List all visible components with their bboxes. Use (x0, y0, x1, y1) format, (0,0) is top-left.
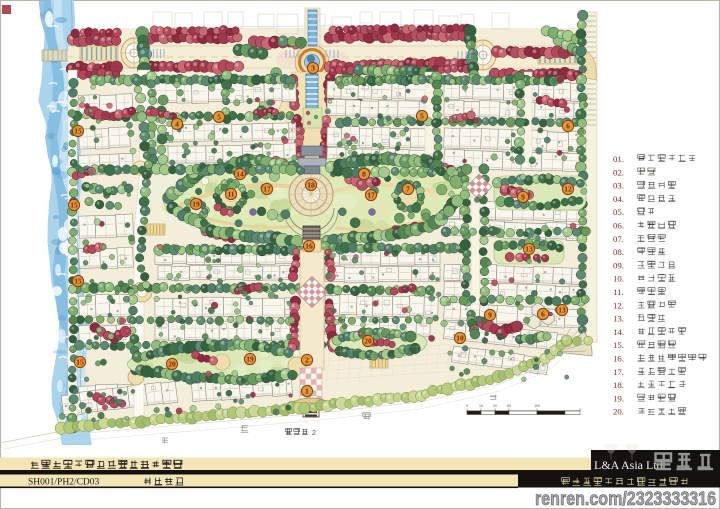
svg-text:19.: 19. (613, 393, 624, 403)
svg-text:16.: 16. (613, 354, 624, 364)
svg-text:15: 15 (74, 127, 82, 136)
svg-text:8: 8 (362, 170, 366, 179)
svg-text:14.: 14. (613, 327, 624, 337)
svg-text:12: 12 (564, 185, 572, 194)
svg-text:2: 2 (305, 356, 309, 365)
svg-text:100: 100 (534, 404, 540, 408)
svg-text:15: 15 (70, 201, 78, 210)
svg-text:04.: 04. (613, 194, 624, 204)
svg-text:0: 0 (466, 404, 468, 408)
svg-text:6: 6 (541, 310, 545, 319)
svg-text:09.: 09. (613, 260, 624, 270)
svg-text:1: 1 (305, 387, 309, 396)
svg-text:renren.com/2323333316: renren.com/2323333316 (535, 489, 716, 509)
svg-text:14: 14 (236, 170, 244, 179)
svg-text:17.: 17. (613, 367, 624, 377)
svg-text:03.: 03. (613, 181, 624, 191)
svg-text:15.: 15. (613, 340, 624, 350)
svg-text:10.: 10. (613, 274, 624, 284)
svg-text:15: 15 (76, 358, 84, 367)
svg-text:20.: 20. (613, 407, 624, 417)
svg-text:10: 10 (479, 404, 483, 408)
svg-text:9: 9 (521, 193, 525, 202)
svg-text:08.: 08. (613, 247, 624, 257)
svg-text:5: 5 (420, 112, 424, 121)
svg-text:2: 2 (312, 430, 316, 437)
svg-text:7: 7 (406, 185, 410, 194)
svg-text:06.: 06. (613, 221, 624, 231)
svg-text:18.: 18. (613, 380, 624, 390)
svg-text:6: 6 (566, 122, 570, 131)
svg-text:13: 13 (525, 245, 533, 254)
svg-text:17: 17 (263, 185, 271, 194)
svg-text:18: 18 (307, 181, 315, 190)
svg-text:11: 11 (227, 190, 234, 199)
svg-text:13.: 13. (613, 314, 624, 324)
svg-text:05.: 05. (613, 207, 624, 217)
svg-text:19: 19 (246, 355, 254, 364)
svg-text:02.: 02. (613, 167, 624, 177)
svg-text:5: 5 (217, 113, 221, 122)
svg-text:16: 16 (305, 242, 313, 251)
svg-text:07.: 07. (613, 234, 624, 244)
svg-text:4: 4 (175, 120, 179, 129)
svg-text:3: 3 (311, 64, 315, 73)
svg-text:01.: 01. (613, 154, 624, 164)
svg-text:20: 20 (168, 360, 176, 369)
svg-text:15: 15 (74, 277, 82, 286)
svg-text:17: 17 (367, 191, 375, 200)
svg-text:13: 13 (558, 306, 566, 315)
svg-text:50: 50 (507, 404, 511, 408)
svg-text:9: 9 (488, 311, 492, 320)
svg-text:10: 10 (456, 334, 464, 343)
svg-text:19: 19 (192, 200, 200, 209)
svg-text:11.: 11. (613, 287, 624, 297)
svg-text:20: 20 (493, 404, 497, 408)
svg-text:12.: 12. (613, 300, 624, 310)
svg-text:SH001/PH2/CD03: SH001/PH2/CD03 (28, 478, 100, 488)
svg-text:20: 20 (364, 337, 372, 346)
